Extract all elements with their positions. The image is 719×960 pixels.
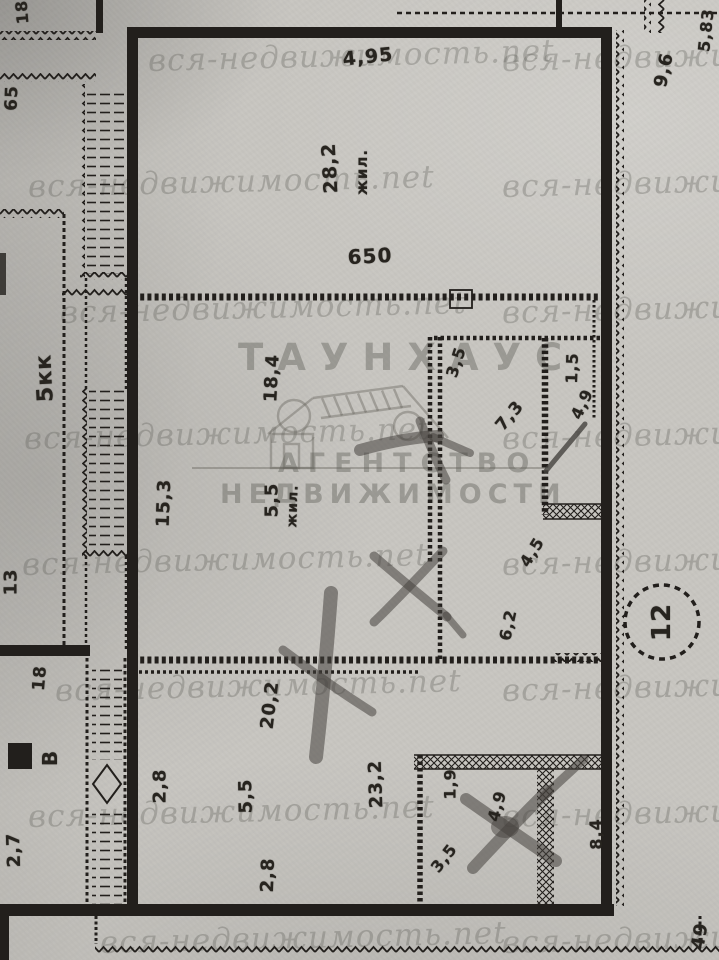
- area-label: 15,3: [153, 478, 176, 527]
- area-label: 18,4: [260, 353, 284, 402]
- watermark-text: вся-недвижимость.net: [502, 285, 719, 331]
- watermark-text: вся-недвижимость.net: [502, 789, 719, 835]
- area-label: 23,2: [365, 759, 388, 808]
- room-label: 18: [29, 664, 51, 691]
- area-label: 20,2: [257, 680, 284, 731]
- watermark-text: вся-недвижимость.net: [502, 915, 719, 960]
- floorplan-photo: вся-недвижимость.net вся-недвижимость.ne…: [0, 0, 719, 960]
- agency-logo: ТАУНХАУС АГЕНТСТВО НЕДВИЖИМОСТИ: [150, 332, 590, 527]
- watermark-text: вся-недвижимость.net: [100, 915, 507, 960]
- area-label: жил.: [353, 149, 371, 195]
- agency-logo-line2: АГЕНТСТВО: [278, 448, 538, 479]
- dimension-label: 6,2: [495, 608, 520, 643]
- stair-strips: [80, 84, 134, 904]
- dimension-label: 8,4: [586, 818, 606, 850]
- area-label: 5,5: [262, 483, 283, 518]
- watermark-text: вся-недвижимость.net: [502, 159, 719, 205]
- dimension-label: 2,8: [150, 769, 171, 804]
- dimension-label: 1,9: [441, 768, 460, 799]
- dimension-label: 1,5: [562, 352, 582, 384]
- room-label: 2,7: [3, 832, 25, 868]
- room-label: 5кк: [31, 353, 58, 402]
- dimension-label: 2,8: [257, 857, 279, 893]
- dimension-label: 650: [347, 243, 393, 269]
- area-label: 28,2: [318, 142, 343, 194]
- room-label: 65: [2, 85, 23, 111]
- room-label: 13: [1, 568, 22, 595]
- watermark-text: вся-недвижимость.net: [28, 159, 435, 205]
- watermark-text: вся-недвижимость.net: [55, 663, 462, 709]
- circled-number: 12: [647, 603, 677, 641]
- area-label: жил.: [284, 484, 302, 528]
- room-label: В: [38, 750, 62, 766]
- dimension-label: 3,5: [427, 840, 461, 876]
- watermark-text: вся-недвижимость.net: [502, 663, 719, 709]
- watermark-text: вся-недвижимость.net: [60, 285, 467, 331]
- dimension-label: 5,5: [235, 778, 257, 813]
- watermark-text: вся-недвижимость.net: [22, 537, 429, 583]
- room-label: 18: [11, 0, 32, 25]
